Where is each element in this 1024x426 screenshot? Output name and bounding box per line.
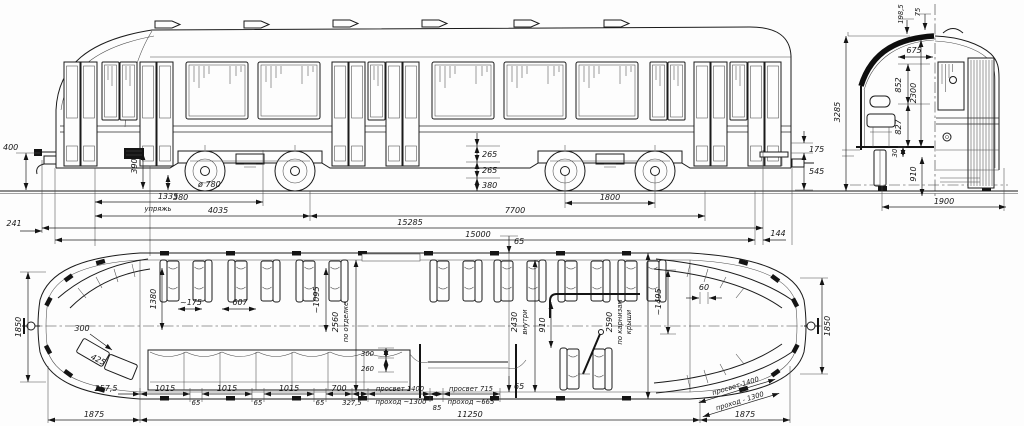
dim-wheel-diameter-label: ø 780: [197, 180, 221, 189]
dim-1015a-label: 1015: [155, 384, 175, 393]
dim-144-label: 144: [770, 229, 785, 238]
plan-dimensions: 65 65 1380 ~175 607 ~1095 2560 по отделк…: [14, 236, 832, 423]
lamp: [943, 133, 951, 141]
dim-60-label: 60: [699, 283, 709, 292]
dim-1015b-label: 1015: [217, 384, 237, 393]
dim-265b-label: 265: [482, 166, 497, 175]
dim-257-label: 257,5: [95, 384, 118, 393]
dim-15285-label: 15285: [397, 218, 422, 227]
dim-675-label: 675: [906, 46, 921, 55]
dim-607-label: 607: [232, 298, 248, 307]
dim-gap2b-label: проход ~665: [448, 398, 495, 406]
dim-65c-label: 65: [316, 399, 325, 407]
dim-545-label: 545: [809, 167, 824, 176]
dim-390-label: 390: [130, 158, 139, 173]
dim-2590-note2: крыши: [625, 309, 633, 334]
dim-1900-label: 1900: [934, 197, 954, 206]
seat-backrest-section: [870, 96, 890, 107]
dim-2430-note: внутри: [521, 309, 529, 335]
dim-3285-label: 3285: [833, 102, 842, 122]
dim-380-mid-label: 380: [482, 181, 497, 190]
tram-technical-drawing: 400 390 380 ø 780 1335 упряжь 4035 7700 …: [0, 0, 1024, 426]
dim-198-label: 198,5: [897, 4, 905, 23]
side-elevation-view: 400 390 380 ø 780 1335 упряжь 4035 7700 …: [0, 20, 838, 256]
dim-1800-label: 1800: [600, 193, 620, 202]
dim-15000-label: 15000: [465, 230, 490, 239]
dim-2590-note1: по карнизам: [616, 299, 624, 344]
transverse-seats-top: [160, 260, 666, 302]
dim-gap1-label: просвет 1400: [376, 385, 424, 393]
dim-265a-label: 265: [482, 150, 497, 159]
seat-cushion-section: [867, 114, 895, 127]
dim-65a-label: 65: [192, 399, 201, 407]
dim-30-label: 30: [891, 149, 899, 158]
dim-85-label: 85: [433, 404, 442, 412]
plan-view: 65 65 1380 ~175 607 ~1095 2560 по отделк…: [14, 236, 832, 423]
side-windows-and-doors: [64, 62, 781, 166]
dim-65b-label: 65: [254, 399, 263, 407]
dim-2590-label: 2590: [605, 312, 614, 332]
dim-327-label: 327,5: [342, 399, 361, 407]
end-cross-section-view: 198,5 75 675 852 2300 827 30 910 3285 19…: [833, 4, 1018, 211]
dim-gap1b-label: проход ~1300: [376, 398, 427, 406]
dim-175-label: 175: [809, 145, 824, 154]
end-exterior-half: [935, 29, 999, 189]
dim-300-label: 300: [74, 324, 89, 333]
dim-175-label: ~175: [180, 298, 202, 307]
dim-1380-label: 1380: [149, 289, 158, 309]
dim-2560-label: 2560: [331, 312, 340, 332]
dim-910-plan-label: 910: [538, 317, 547, 332]
dim-1875-right-label: 1875: [735, 410, 755, 419]
bogie-rear: [538, 145, 682, 191]
dim-400-label: 400: [3, 143, 18, 152]
dim-gap2-label: просвет 715: [449, 385, 493, 393]
drawing-canvas: 400 390 380 ø 780 1335 упряжь 4035 7700 …: [0, 0, 1024, 426]
roof-dome: [943, 29, 963, 34]
dim-700-label: 700: [331, 384, 346, 393]
dim-1875-left-label: 1875: [84, 410, 104, 419]
dim-1495-label: ~1495: [654, 288, 663, 315]
plan-coupler-left: [22, 318, 40, 334]
dim-door-300-label: 300: [361, 350, 374, 358]
dim-1850-right-label: 1850: [823, 316, 832, 336]
dim-harness-label: упряжь: [144, 205, 172, 213]
dim-65-top-label: 65: [514, 237, 524, 246]
dim-241-label: 241: [6, 219, 21, 228]
dim-1335-label: 1335: [158, 192, 178, 201]
dim-827-label: 827: [894, 118, 903, 134]
dim-1850-left-label: 1850: [14, 317, 23, 337]
dim-852-label: 852: [894, 77, 903, 92]
dim-75-label: 75: [914, 8, 922, 17]
dim-910-label: 910: [909, 166, 918, 181]
dim-1015c-label: 1015: [279, 384, 299, 393]
dim-65-bottom-label: 65: [514, 382, 524, 391]
dim-7700-label: 7700: [505, 206, 525, 215]
dim-door-260-label: 260: [361, 365, 374, 373]
end-door: [968, 58, 994, 188]
dim-2430-label: 2430: [510, 312, 519, 332]
dim-2300-label: 2300: [909, 83, 918, 103]
roof-vents: [155, 20, 629, 28]
dim-2560-note: по отделке: [342, 302, 350, 342]
dim-1095-label: ~1095: [312, 286, 321, 313]
dim-4035-label: 4035: [208, 206, 228, 215]
dim-11250-label: 11250: [457, 410, 482, 419]
